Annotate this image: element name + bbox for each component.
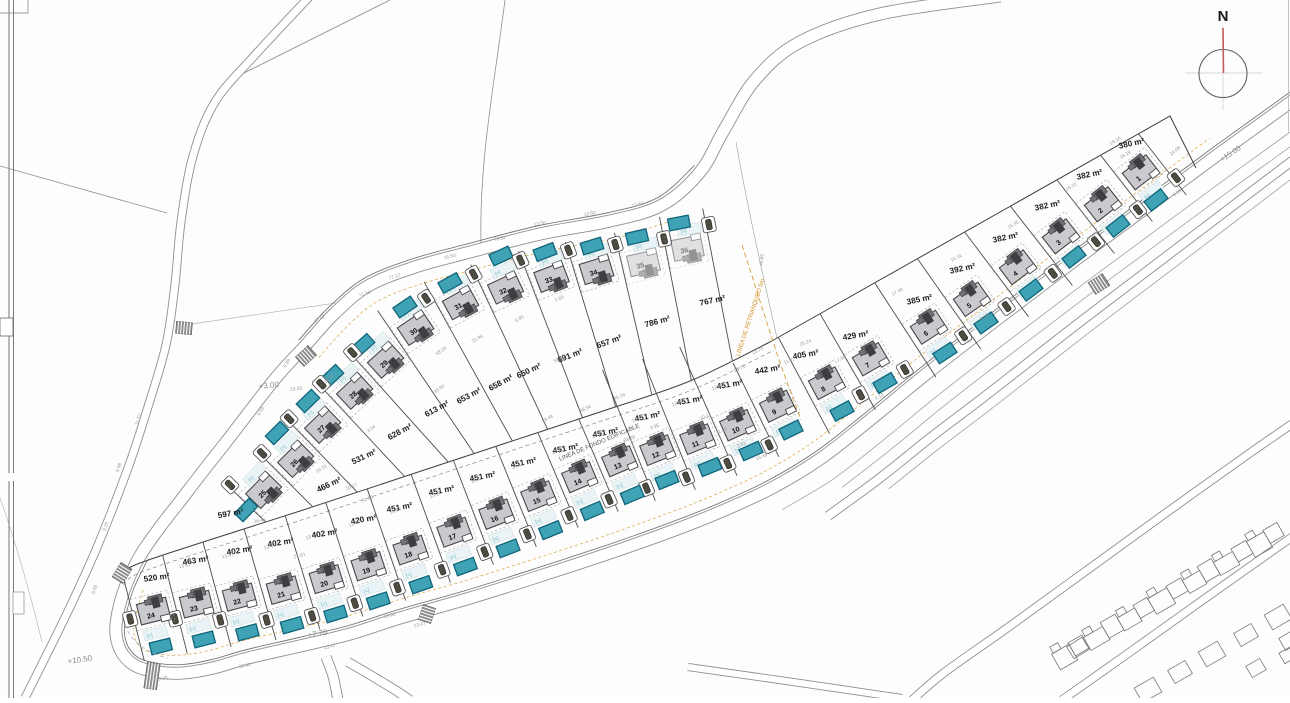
svg-text:N: N	[1218, 8, 1229, 25]
svg-text:36: 36	[680, 247, 689, 255]
